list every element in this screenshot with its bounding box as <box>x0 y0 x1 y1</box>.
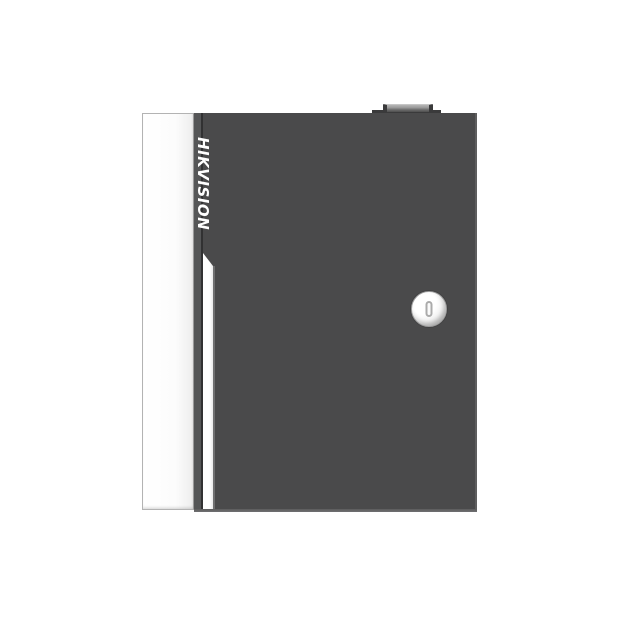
door-bottom-edge <box>194 509 477 512</box>
door-right-edge <box>475 113 477 512</box>
cam-lock <box>411 291 447 327</box>
stripe-seam-line <box>213 266 215 510</box>
hinge-knuckle <box>383 104 433 112</box>
keyhole-slot-icon <box>426 301 433 317</box>
product-photo: HIKVISION <box>0 0 620 620</box>
brand-logo: HIKVISION <box>194 137 212 230</box>
side-panel <box>142 113 194 510</box>
door-stripe <box>203 253 213 510</box>
door-panel: HIKVISION <box>194 113 477 512</box>
